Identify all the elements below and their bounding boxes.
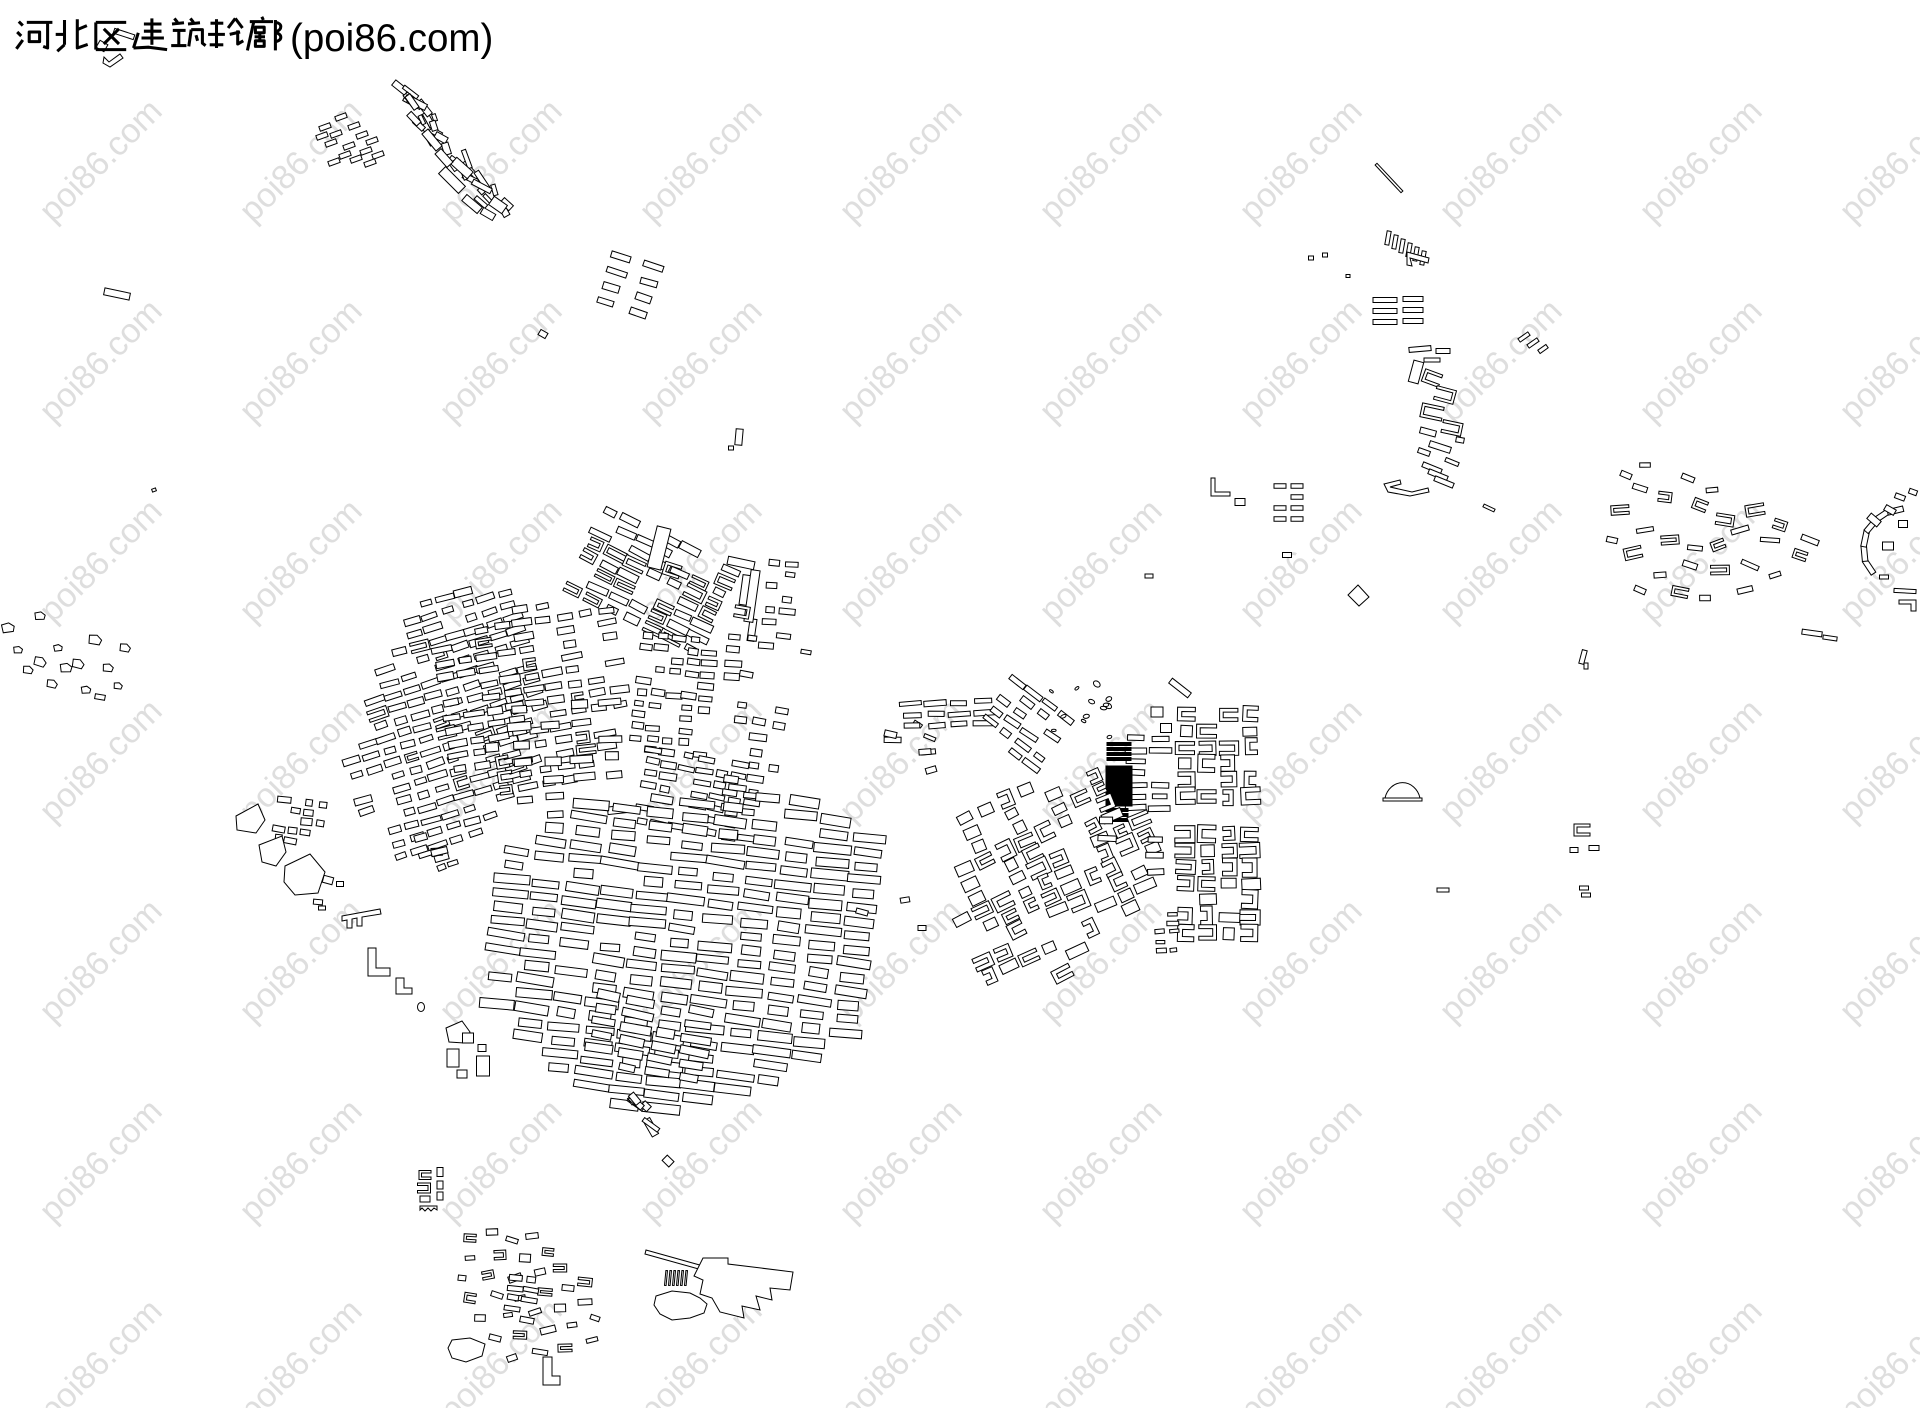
svg-text:poi86.com: poi86.com [32,892,170,1030]
svg-text:poi86.com: poi86.com [32,1292,170,1408]
svg-text:poi86.com: poi86.com [1432,492,1570,630]
svg-text:poi86.com: poi86.com [432,292,570,430]
svg-text:poi86.com: poi86.com [1832,1292,1920,1408]
svg-text:poi86.com: poi86.com [632,292,770,430]
svg-text:poi86.com: poi86.com [32,92,170,230]
svg-text:poi86.com: poi86.com [1832,492,1920,630]
svg-text:poi86.com: poi86.com [1432,892,1570,1030]
svg-text:poi86.com: poi86.com [1232,1292,1370,1408]
svg-text:poi86.com: poi86.com [1432,1092,1570,1230]
svg-text:poi86.com: poi86.com [1432,292,1570,430]
svg-text:poi86.com: poi86.com [1632,1092,1770,1230]
svg-text:poi86.com: poi86.com [232,292,370,430]
svg-text:poi86.com: poi86.com [1832,292,1920,430]
svg-text:poi86.com: poi86.com [32,492,170,630]
svg-text:poi86.com: poi86.com [1632,92,1770,230]
svg-text:poi86.com: poi86.com [1432,92,1570,230]
svg-text:(poi86.com): (poi86.com) [290,17,493,60]
svg-text:poi86.com: poi86.com [1032,92,1170,230]
svg-text:poi86.com: poi86.com [632,92,770,230]
svg-text:poi86.com: poi86.com [1632,292,1770,430]
svg-text:poi86.com: poi86.com [1832,92,1920,230]
svg-text:poi86.com: poi86.com [832,92,970,230]
svg-text:poi86.com: poi86.com [32,292,170,430]
svg-text:poi86.com: poi86.com [232,1292,370,1408]
svg-text:poi86.com: poi86.com [1832,892,1920,1030]
svg-text:poi86.com: poi86.com [1832,1092,1920,1230]
svg-text:poi86.com: poi86.com [1232,292,1370,430]
svg-text:poi86.com: poi86.com [1632,892,1770,1030]
svg-text:poi86.com: poi86.com [432,1092,570,1230]
svg-text:poi86.com: poi86.com [1032,1092,1170,1230]
svg-text:poi86.com: poi86.com [832,1292,970,1408]
svg-text:poi86.com: poi86.com [832,1092,970,1230]
svg-text:poi86.com: poi86.com [232,492,370,630]
svg-text:poi86.com: poi86.com [1832,692,1920,830]
svg-text:poi86.com: poi86.com [1432,1292,1570,1408]
svg-text:poi86.com: poi86.com [32,692,170,830]
svg-text:poi86.com: poi86.com [32,1092,170,1230]
svg-text:poi86.com: poi86.com [232,92,370,230]
svg-text:poi86.com: poi86.com [832,292,970,430]
svg-text:poi86.com: poi86.com [832,492,970,630]
svg-text:poi86.com: poi86.com [232,1092,370,1230]
svg-text:poi86.com: poi86.com [1032,492,1170,630]
svg-text:poi86.com: poi86.com [1232,492,1370,630]
svg-text:poi86.com: poi86.com [1432,692,1570,830]
svg-text:poi86.com: poi86.com [1232,1092,1370,1230]
svg-text:poi86.com: poi86.com [1632,1292,1770,1408]
svg-text:poi86.com: poi86.com [1232,92,1370,230]
svg-text:poi86.com: poi86.com [1032,1292,1170,1408]
svg-text:poi86.com: poi86.com [1232,692,1370,830]
svg-text:poi86.com: poi86.com [1032,292,1170,430]
svg-text:poi86.com: poi86.com [1632,692,1770,830]
svg-text:poi86.com: poi86.com [232,892,370,1030]
